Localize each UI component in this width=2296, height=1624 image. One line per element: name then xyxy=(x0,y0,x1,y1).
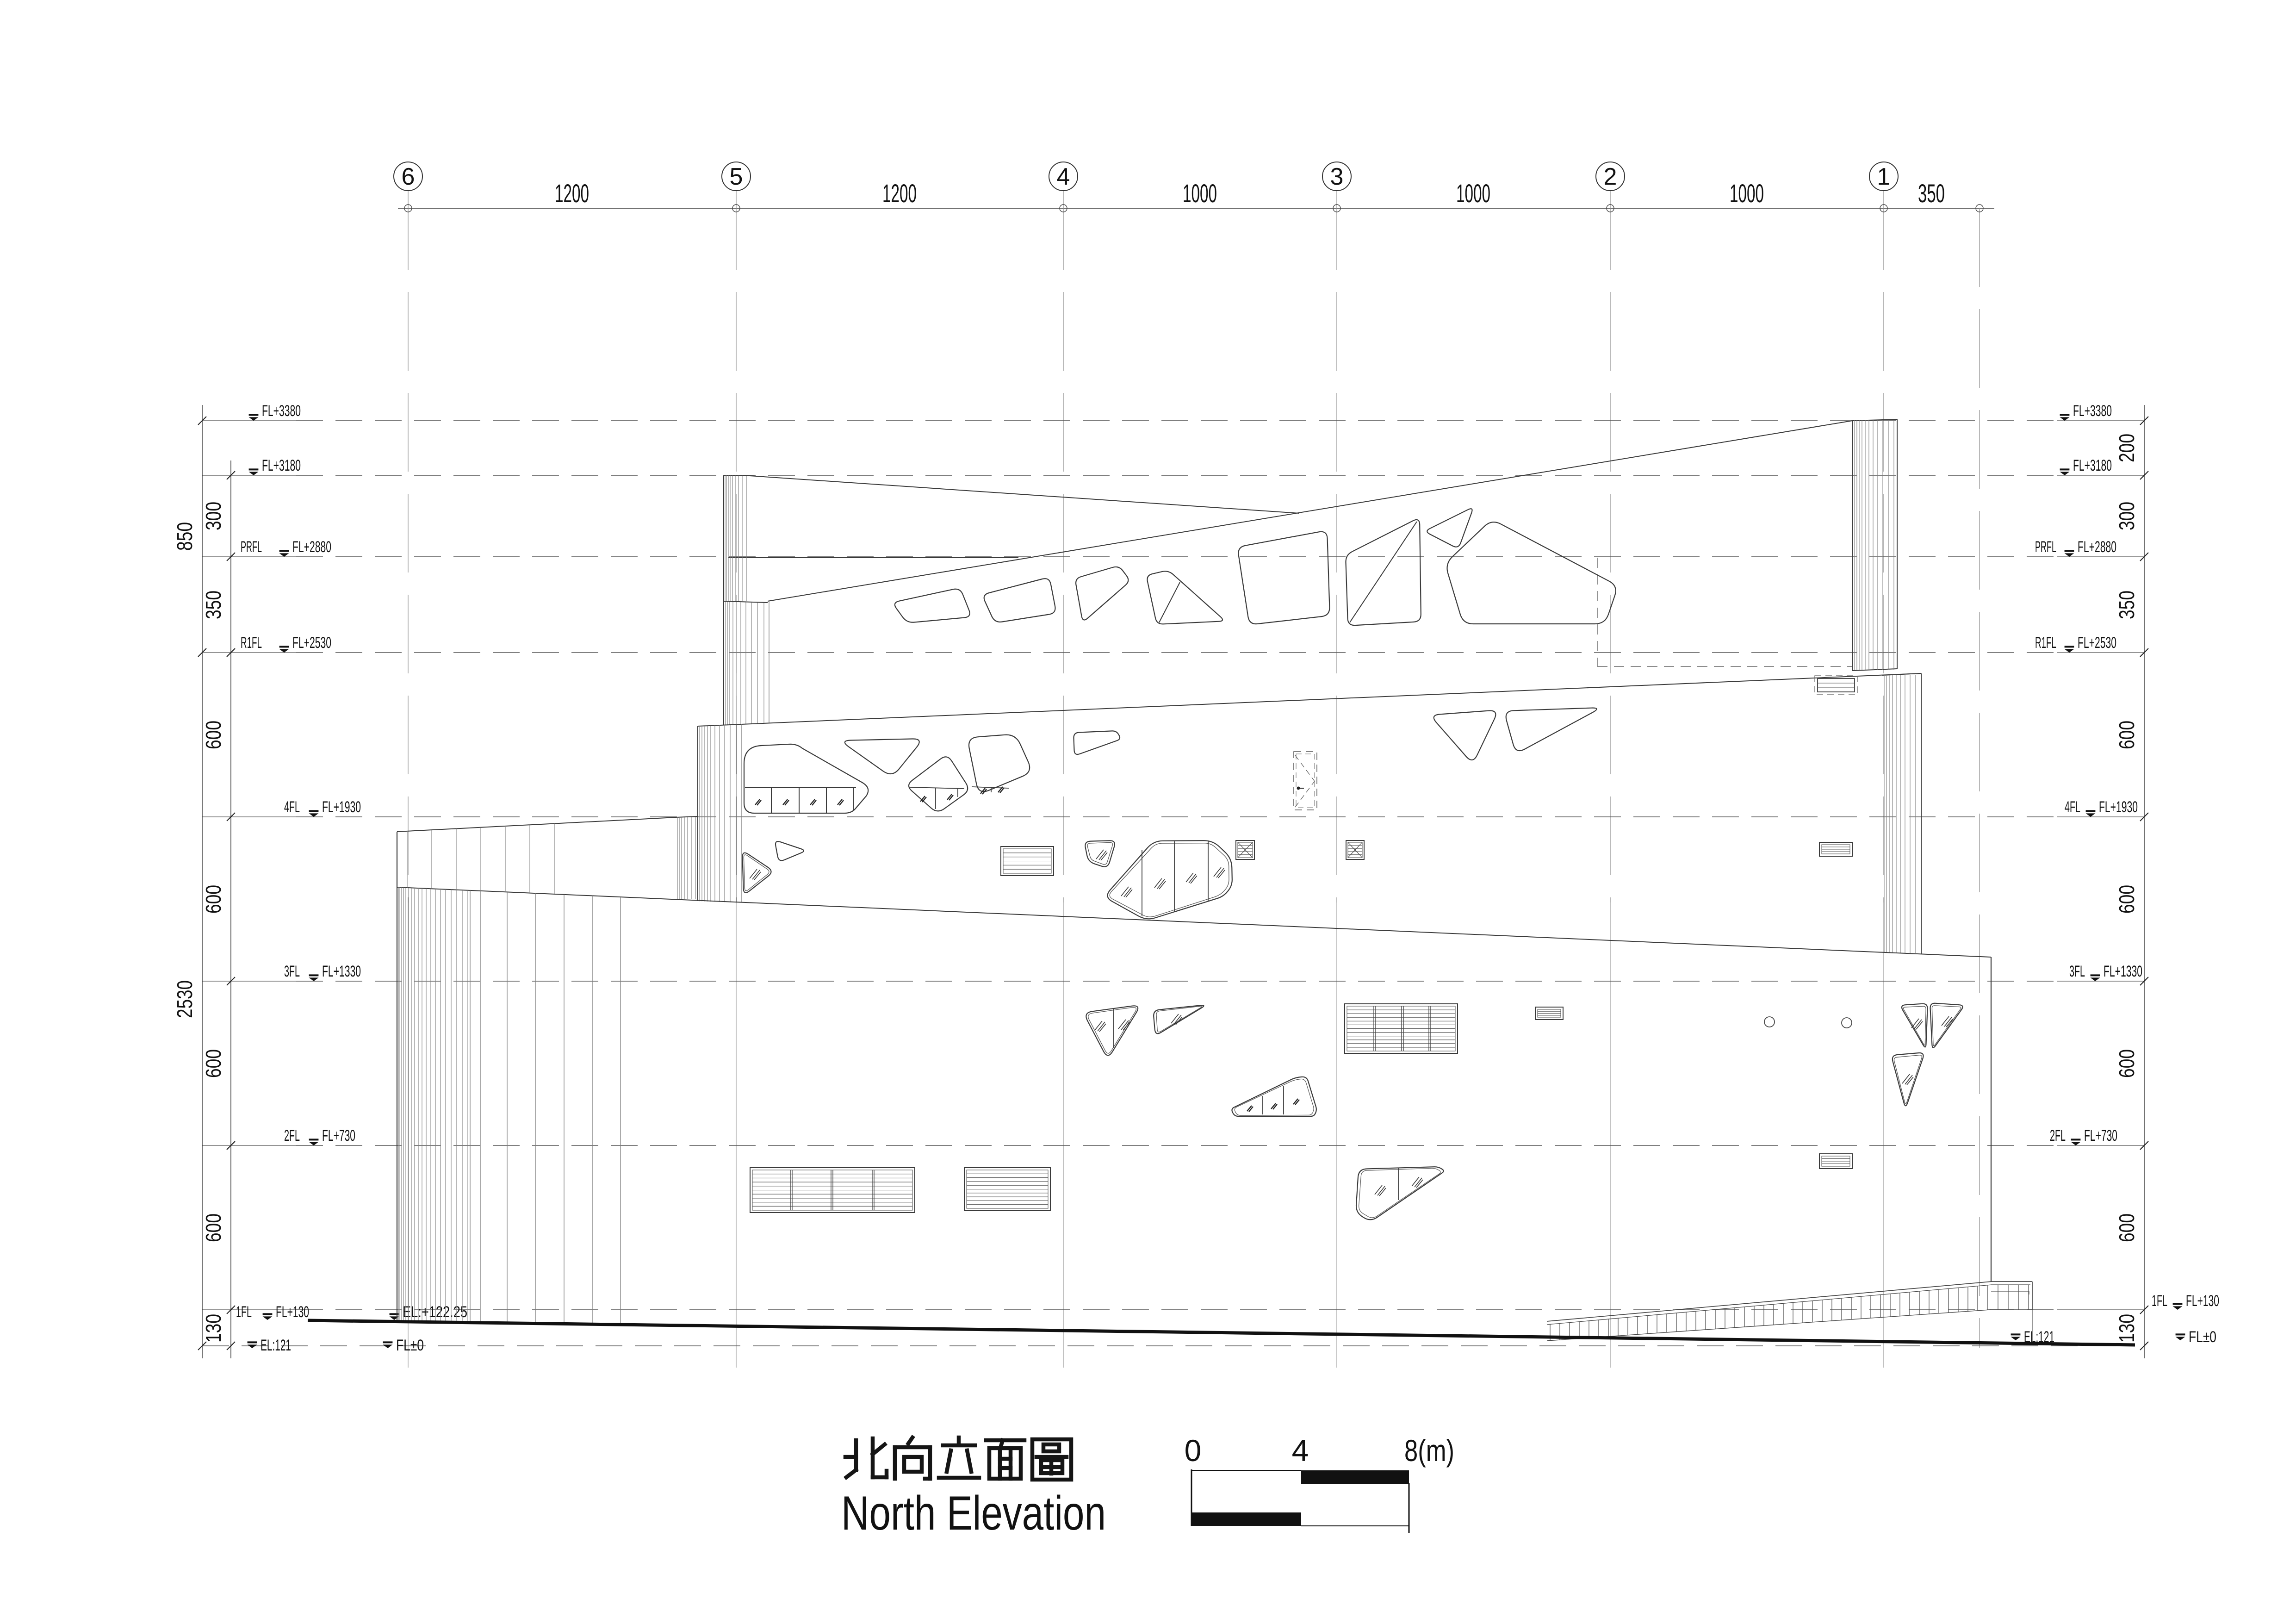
svg-text:4: 4 xyxy=(1057,163,1070,190)
svg-text:R1FL: R1FL xyxy=(2035,634,2056,652)
svg-text:6: 6 xyxy=(402,163,415,190)
svg-text:5: 5 xyxy=(730,163,743,190)
svg-text:FL±0: FL±0 xyxy=(2189,1328,2216,1346)
svg-text:EL:121: EL:121 xyxy=(261,1337,291,1354)
svg-text:600: 600 xyxy=(2115,1213,2139,1242)
svg-text:350: 350 xyxy=(2115,591,2139,619)
svg-text:FL+3380: FL+3380 xyxy=(262,402,301,420)
svg-text:3FL: 3FL xyxy=(284,963,300,980)
svg-text:0: 0 xyxy=(1185,1433,1202,1468)
svg-text:1200: 1200 xyxy=(882,179,917,208)
svg-text:FL+3180: FL+3180 xyxy=(262,457,301,474)
svg-text:FL+130: FL+130 xyxy=(276,1303,309,1321)
svg-text:600: 600 xyxy=(201,1213,225,1242)
svg-text:North Elevation: North Elevation xyxy=(841,1487,1106,1540)
svg-text:2530: 2530 xyxy=(173,980,197,1018)
svg-text:R1FL: R1FL xyxy=(241,634,262,652)
svg-text:130: 130 xyxy=(2115,1314,2139,1343)
svg-text:PRFL: PRFL xyxy=(2035,538,2056,556)
svg-text:FL+1330: FL+1330 xyxy=(2104,963,2142,980)
svg-text:FL+2530: FL+2530 xyxy=(292,634,331,652)
svg-text:FL+130: FL+130 xyxy=(2186,1292,2219,1310)
svg-text:600: 600 xyxy=(2115,1049,2139,1078)
svg-text:600: 600 xyxy=(2115,721,2139,749)
svg-text:3: 3 xyxy=(1330,163,1344,190)
svg-text:2FL: 2FL xyxy=(2050,1127,2066,1145)
svg-text:FL±0: FL±0 xyxy=(396,1337,424,1354)
svg-text:FL+730: FL+730 xyxy=(2084,1127,2117,1145)
svg-text:4: 4 xyxy=(1292,1433,1309,1468)
svg-text:2: 2 xyxy=(1604,163,1617,190)
svg-text:130: 130 xyxy=(201,1314,225,1343)
svg-text:1FL: 1FL xyxy=(2152,1292,2167,1310)
svg-text:4FL: 4FL xyxy=(284,798,300,816)
svg-text:1000: 1000 xyxy=(1456,179,1490,208)
svg-text:850: 850 xyxy=(173,522,197,551)
svg-text:300: 300 xyxy=(201,502,225,530)
svg-text:600: 600 xyxy=(201,721,225,749)
svg-text:FL+3380: FL+3380 xyxy=(2073,402,2112,420)
svg-text:FL+1930: FL+1930 xyxy=(322,798,361,816)
svg-text:1000: 1000 xyxy=(1183,179,1217,208)
svg-text:600: 600 xyxy=(201,885,225,914)
svg-text:8(m): 8(m) xyxy=(1404,1433,1454,1468)
svg-text:1000: 1000 xyxy=(1730,179,1764,208)
svg-text:4FL: 4FL xyxy=(2065,798,2080,816)
svg-text:FL+2530: FL+2530 xyxy=(2078,634,2116,652)
svg-text:1200: 1200 xyxy=(555,179,589,208)
svg-text:350: 350 xyxy=(201,591,225,619)
svg-text:FL+1330: FL+1330 xyxy=(322,963,361,980)
svg-text:600: 600 xyxy=(2115,885,2139,914)
svg-text:1: 1 xyxy=(1877,163,1891,190)
svg-text:200: 200 xyxy=(2115,434,2139,462)
svg-text:PRFL: PRFL xyxy=(241,538,262,556)
svg-text:600: 600 xyxy=(201,1049,225,1078)
svg-text:FL+730: FL+730 xyxy=(322,1127,355,1145)
svg-text:1FL: 1FL xyxy=(236,1303,252,1321)
svg-text:3FL: 3FL xyxy=(2069,963,2085,980)
svg-text:EL:+122.25: EL:+122.25 xyxy=(403,1303,467,1321)
svg-text:FL+2880: FL+2880 xyxy=(2078,538,2116,556)
svg-text:FL+1930: FL+1930 xyxy=(2099,798,2138,816)
svg-text:FL+3180: FL+3180 xyxy=(2073,457,2112,474)
svg-text:350: 350 xyxy=(1918,179,1945,208)
svg-text:FL+2880: FL+2880 xyxy=(292,538,331,556)
svg-text:2FL: 2FL xyxy=(284,1127,300,1145)
svg-text:300: 300 xyxy=(2115,502,2139,530)
